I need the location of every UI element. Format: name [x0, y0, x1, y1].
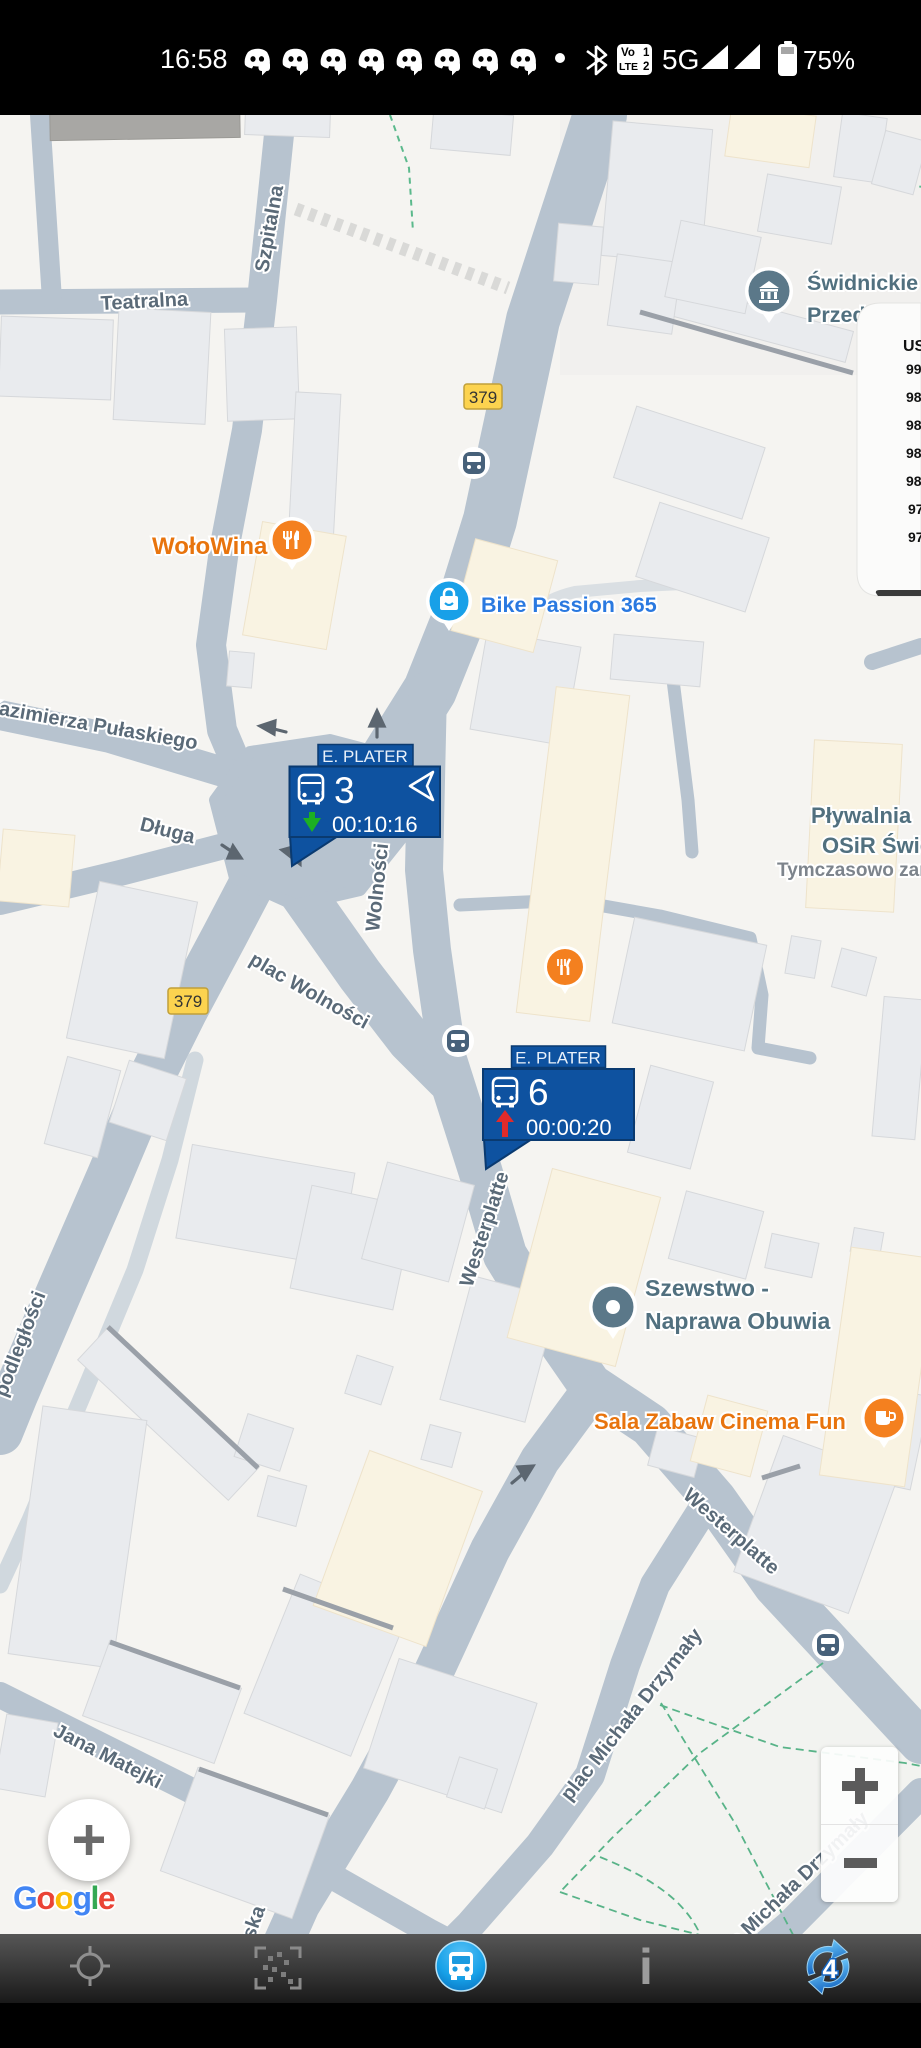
svg-text:379: 379	[469, 388, 497, 407]
svg-text:WołoWina: WołoWina	[152, 533, 268, 560]
svg-text:00:00:20: 00:00:20	[526, 1115, 612, 1140]
svg-text:Świdnickie: Świdnickie	[807, 270, 918, 295]
svg-text:OSiR Świd: OSiR Świd	[822, 833, 921, 858]
svg-text:97: 97	[908, 529, 921, 545]
svg-text:Teatralna: Teatralna	[100, 288, 189, 315]
svg-text:99: 99	[906, 361, 921, 377]
svg-text:E. PLATER: E. PLATER	[322, 747, 408, 766]
svg-text:379: 379	[174, 992, 202, 1011]
svg-text:5G: 5G	[662, 44, 699, 75]
svg-text:98: 98	[906, 389, 921, 405]
svg-text:3: 3	[334, 770, 355, 811]
svg-text:Bike Passion 365: Bike Passion 365	[481, 593, 657, 617]
svg-text:1: 1	[643, 47, 650, 59]
svg-text:75%: 75%	[803, 45, 855, 75]
svg-text:US: US	[903, 338, 921, 355]
svg-text:Szewstwo -: Szewstwo -	[645, 1275, 769, 1301]
svg-text:Tymczasowo zamk: Tymczasowo zamk	[777, 860, 921, 881]
svg-text:6: 6	[528, 1072, 549, 1113]
svg-text:LTE: LTE	[619, 61, 638, 73]
svg-text:Sala Zabaw Cinema Fun: Sala Zabaw Cinema Fun	[594, 1409, 846, 1434]
svg-text:2: 2	[643, 61, 649, 73]
svg-text:98: 98	[906, 417, 921, 433]
svg-text:Pływalnia: Pływalnia	[811, 803, 912, 828]
svg-text:00:10:16: 00:10:16	[332, 812, 418, 837]
svg-text:Naprawa Obuwia: Naprawa Obuwia	[645, 1308, 831, 1334]
svg-text:97: 97	[908, 501, 921, 517]
svg-text:4: 4	[822, 1954, 837, 1984]
svg-text:Vo: Vo	[621, 47, 635, 59]
svg-text:E. PLATER: E. PLATER	[515, 1049, 601, 1068]
svg-text:i: i	[639, 1939, 653, 1995]
svg-text:98: 98	[906, 473, 921, 489]
svg-text:98: 98	[906, 445, 921, 461]
